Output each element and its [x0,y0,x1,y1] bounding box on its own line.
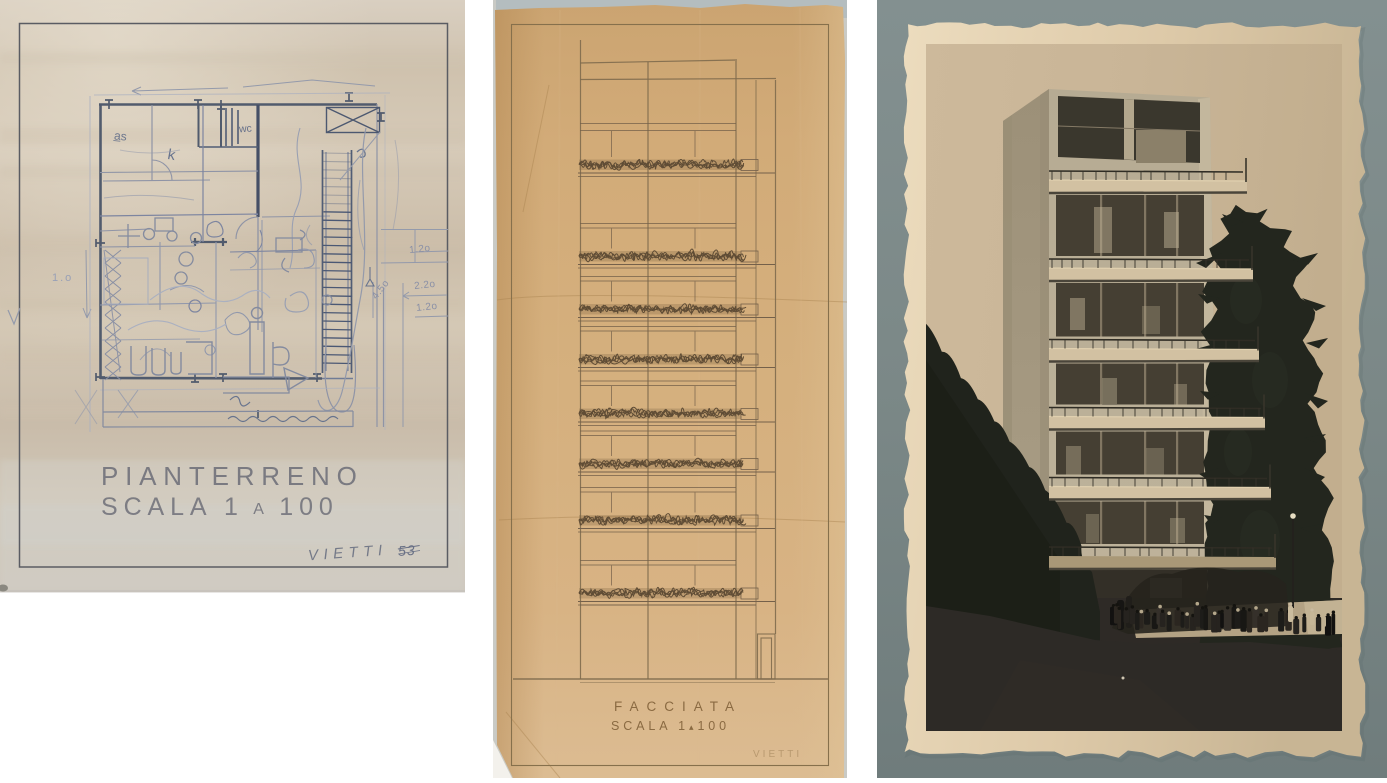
svg-text:SCALA 1 A 100: SCALA 1 A 100 [101,493,339,521]
svg-text:a̲s: a̲s [113,128,128,143]
svg-text:PIANTERRENO: PIANTERRENO [101,461,364,491]
svg-text:53: 53 [397,542,416,559]
svg-text:FACCIATA: FACCIATA [614,699,742,714]
svg-text:VIETTI: VIETTI [753,749,802,760]
svg-text:SCALA 1▴100: SCALA 1▴100 [611,719,730,733]
svg-text:1.o: 1.o [52,272,73,284]
svg-text:1.2o: 1.2o [416,301,439,314]
svg-text:wc: wc [238,122,253,135]
svg-text:1.2o: 1.2o [409,243,432,256]
svg-text:2.2o: 2.2o [414,279,437,292]
